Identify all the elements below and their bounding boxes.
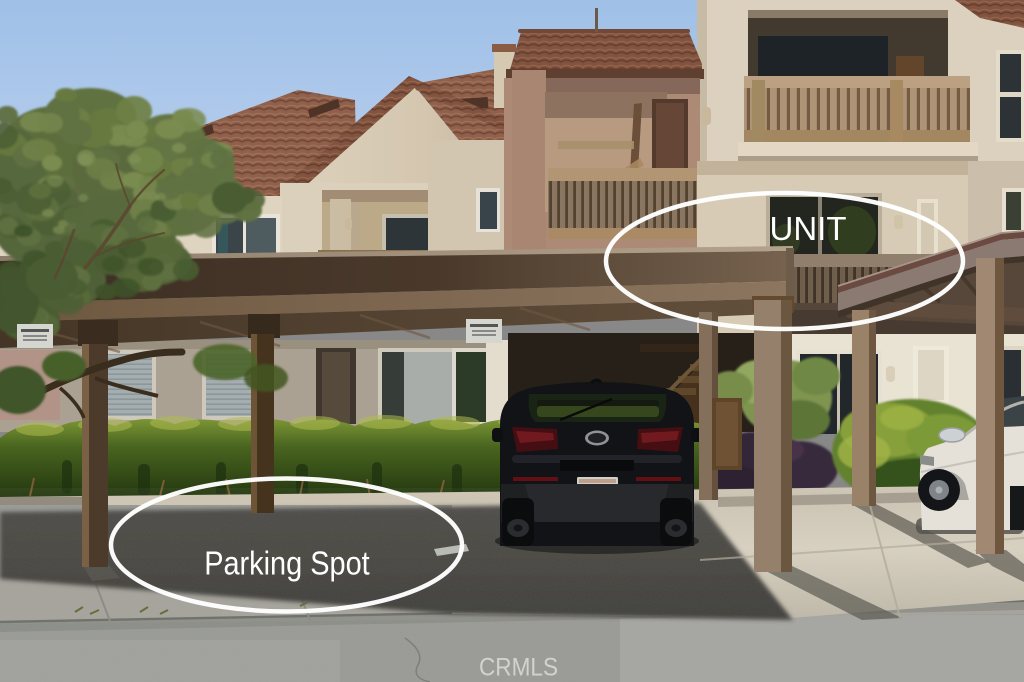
svg-text:CRMLS: CRMLS xyxy=(479,654,558,682)
svg-text:UNIT: UNIT xyxy=(770,210,847,247)
svg-text:Parking Spot: Parking Spot xyxy=(204,545,370,582)
